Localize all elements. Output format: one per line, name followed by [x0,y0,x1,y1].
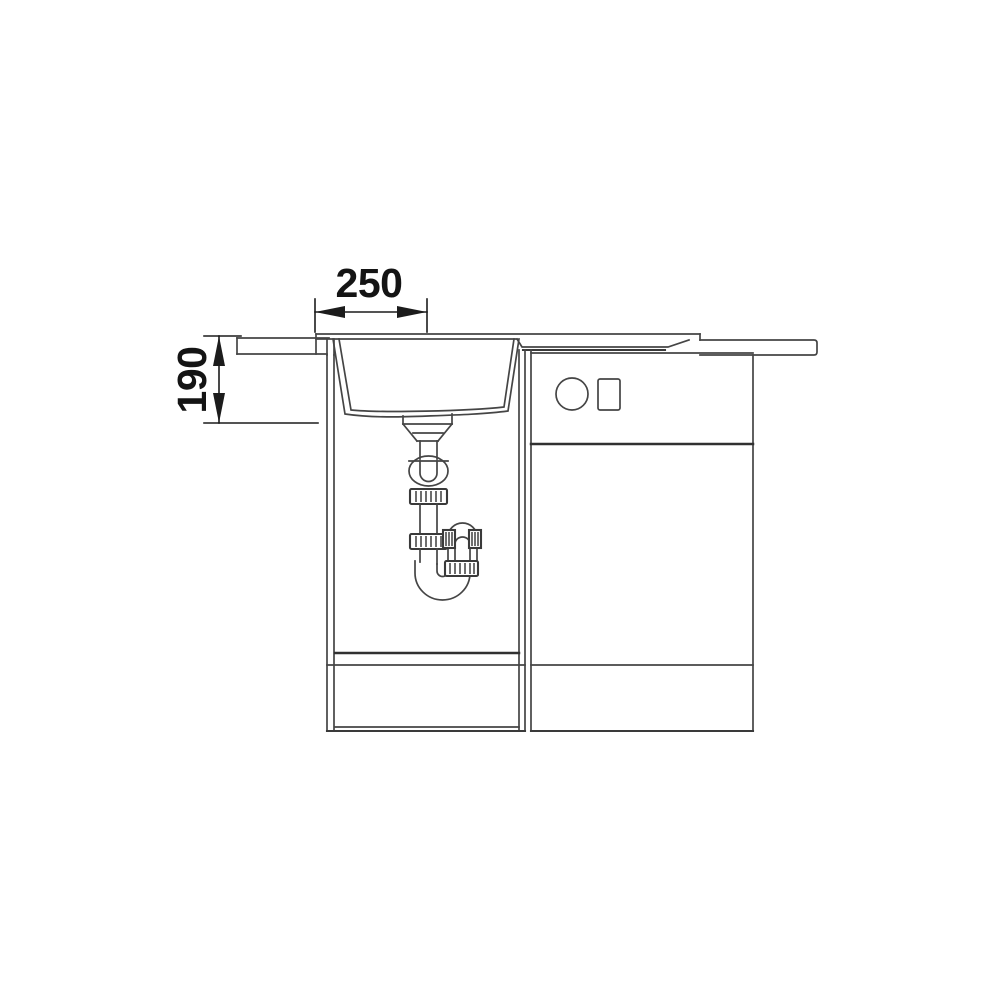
drawer-circle-symbol [556,378,588,410]
adjacent-cabinet [531,350,753,731]
union-nut-upper [410,489,447,504]
downpipe-upper [420,504,437,534]
dim-arrow-right-icon [397,306,427,318]
swivel-joint-cup [420,461,437,482]
downpipe-lower [420,549,437,564]
sink-top-profile [316,334,700,355]
dim-label-190: 190 [169,347,215,414]
sink-bowl [333,339,519,417]
drainer-surface [517,339,689,347]
drain-assembly [403,414,481,600]
elbow-rib-right [469,530,481,548]
sink-installation-drawing: 250 190 [0,0,992,992]
bowl-inner-wall [339,339,514,411]
technical-drawing-svg: 250 190 [0,0,992,992]
outlet-elbow-inner [455,537,470,561]
union-nut-middle [410,534,447,549]
elbow-rib-left [443,530,455,548]
union-nut-outlet [445,561,478,576]
dimension-vertical: 190 [169,336,318,423]
drawer-square-symbol [598,379,620,410]
dim-label-250: 250 [336,260,403,306]
dimension-horizontal: 250 [315,260,427,332]
bowl-outer-wall [333,339,519,417]
dim-arrow-left-icon [315,306,345,318]
